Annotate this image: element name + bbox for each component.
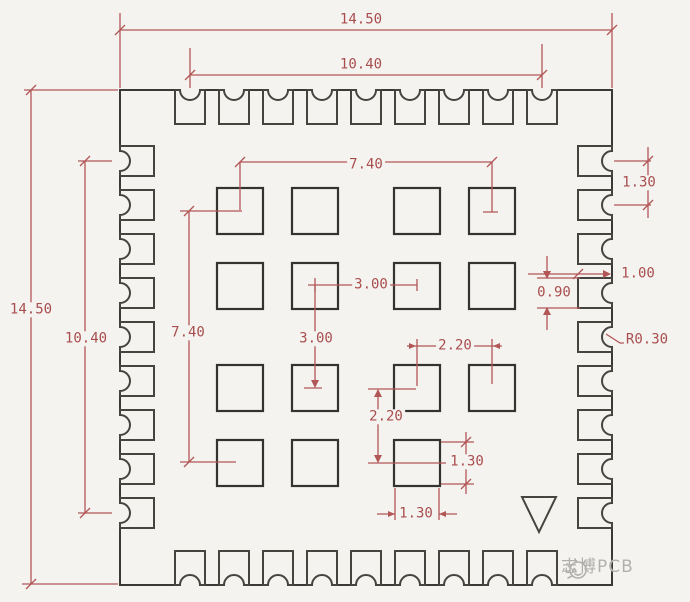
dim-left-outer-label: 14.50 bbox=[8, 302, 54, 317]
dim-top-inner-label: 10.40 bbox=[338, 57, 384, 72]
dim-edge-depth-label: 1.00 bbox=[619, 266, 657, 281]
top-edge-pads bbox=[175, 88, 557, 124]
dim-grid-span-v-label: 7.40 bbox=[169, 325, 207, 340]
watermark: 志博PCB bbox=[561, 552, 634, 577]
dim-center-pitch-h-label: 3.00 bbox=[352, 277, 390, 292]
dim-pad-height-label: 1.30 bbox=[448, 454, 486, 469]
dim-pitch-v-label: 2.20 bbox=[367, 409, 405, 424]
footprint-drawing: 14.50 10.40 14.50 10.40 7.40 7.40 3.00 3… bbox=[0, 0, 690, 602]
dim-top-outer-label: 14.50 bbox=[338, 12, 384, 27]
dim-edge-width-label: 0.90 bbox=[535, 285, 573, 300]
left-edge-pads bbox=[118, 146, 154, 528]
drawing-canvas bbox=[0, 0, 690, 602]
dim-left-inner-label: 10.40 bbox=[63, 331, 109, 346]
right-edge-pads bbox=[578, 146, 614, 528]
dim-edge-pitch-label: 1.30 bbox=[620, 175, 658, 190]
dim-notch-radius-label: R0.30 bbox=[624, 332, 670, 347]
dim-grid-span-h-label: 7.40 bbox=[347, 157, 385, 172]
watermark-sun-icon bbox=[561, 552, 591, 584]
dim-pad-width-label: 1.30 bbox=[397, 506, 435, 521]
dim-center-pitch-v-label: 3.00 bbox=[297, 331, 335, 346]
bottom-edge-pads bbox=[175, 551, 557, 587]
pin1-marker-triangle bbox=[522, 497, 556, 532]
dim-pitch-h-label: 2.20 bbox=[436, 338, 474, 353]
